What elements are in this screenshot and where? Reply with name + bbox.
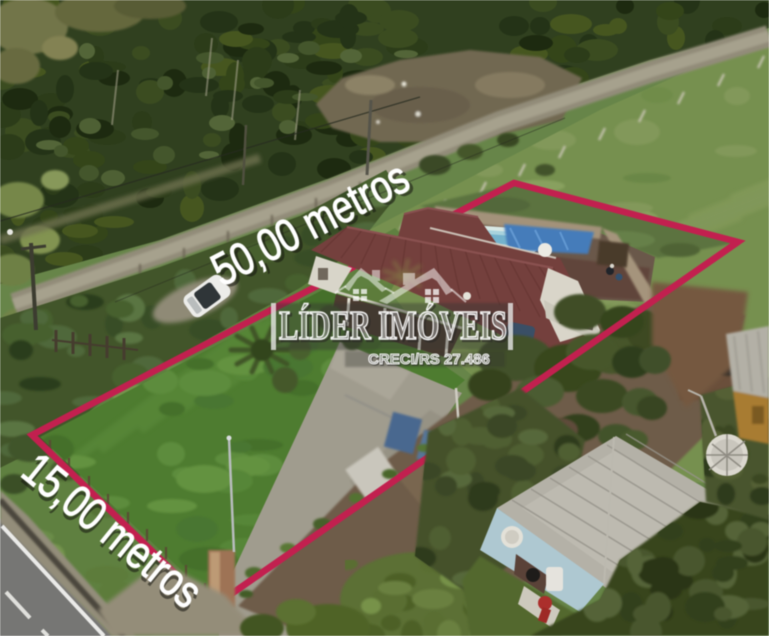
svg-text:CRECI/RS 27.486: CRECI/RS 27.486 (368, 351, 490, 368)
svg-text:LÍDER IMÓVEIS: LÍDER IMÓVEIS (279, 302, 507, 348)
